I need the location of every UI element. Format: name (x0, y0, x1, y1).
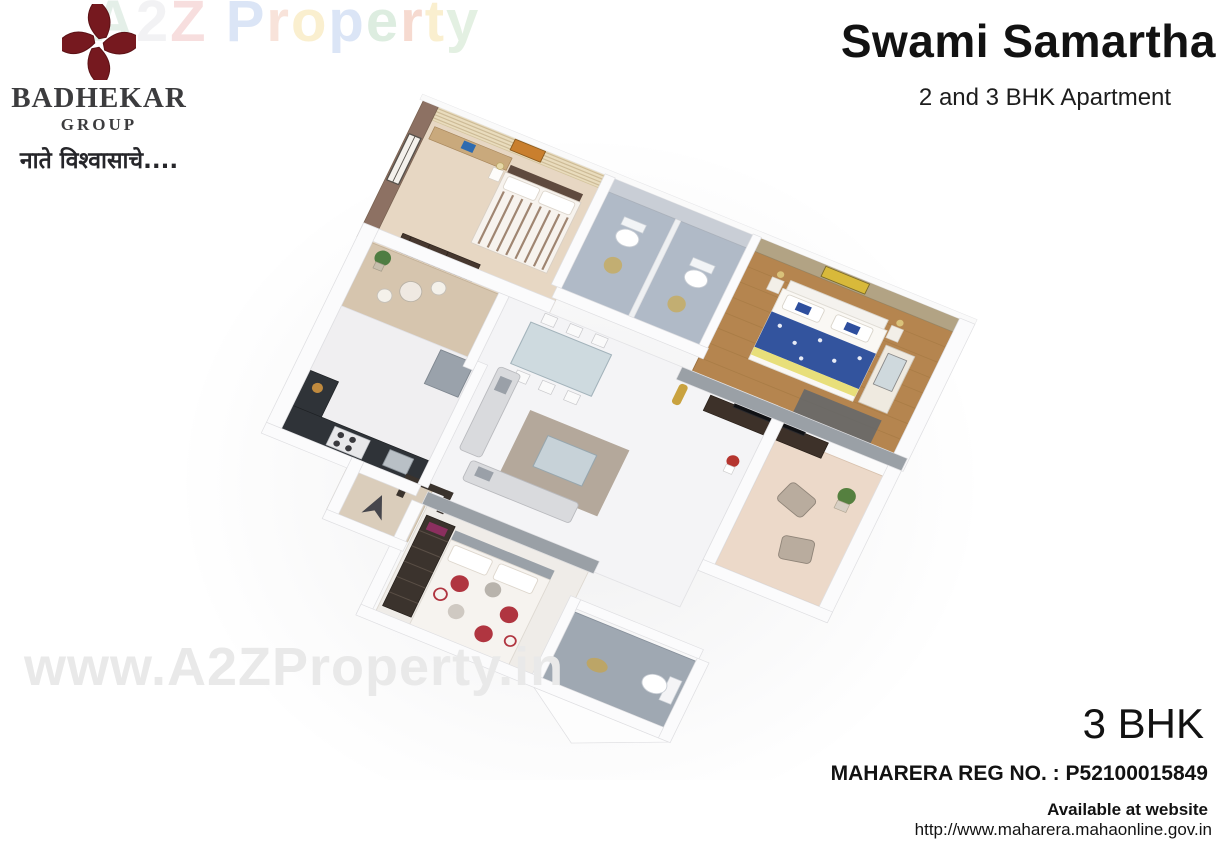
rera-registration: MAHARERA REG NO. : P52100015849 (831, 762, 1208, 786)
unit-type-label: 3 BHK (1083, 700, 1204, 748)
poster: A2Z Property (0, 0, 1220, 842)
brand-block: BADHEKAR GROUP नाते विश्वासाचे.... (0, 4, 198, 175)
watermark-a2z-bottom: www.A2ZProperty.in (24, 636, 564, 698)
brand-subname: GROUP (0, 115, 198, 135)
brand-name: BADHEKAR (0, 84, 198, 113)
project-title: Swami Samartha (816, 14, 1216, 68)
badhekar-logo (62, 4, 136, 80)
availability-label: Available at website (1047, 800, 1208, 820)
logo-petals (62, 4, 136, 80)
brand-tagline: नाते विश्वासाचे.... (0, 143, 198, 175)
maharera-website: http://www.maharera.mahaonline.gov.in (915, 820, 1212, 840)
project-subtitle: 2 and 3 BHK Apartment (885, 84, 1205, 112)
